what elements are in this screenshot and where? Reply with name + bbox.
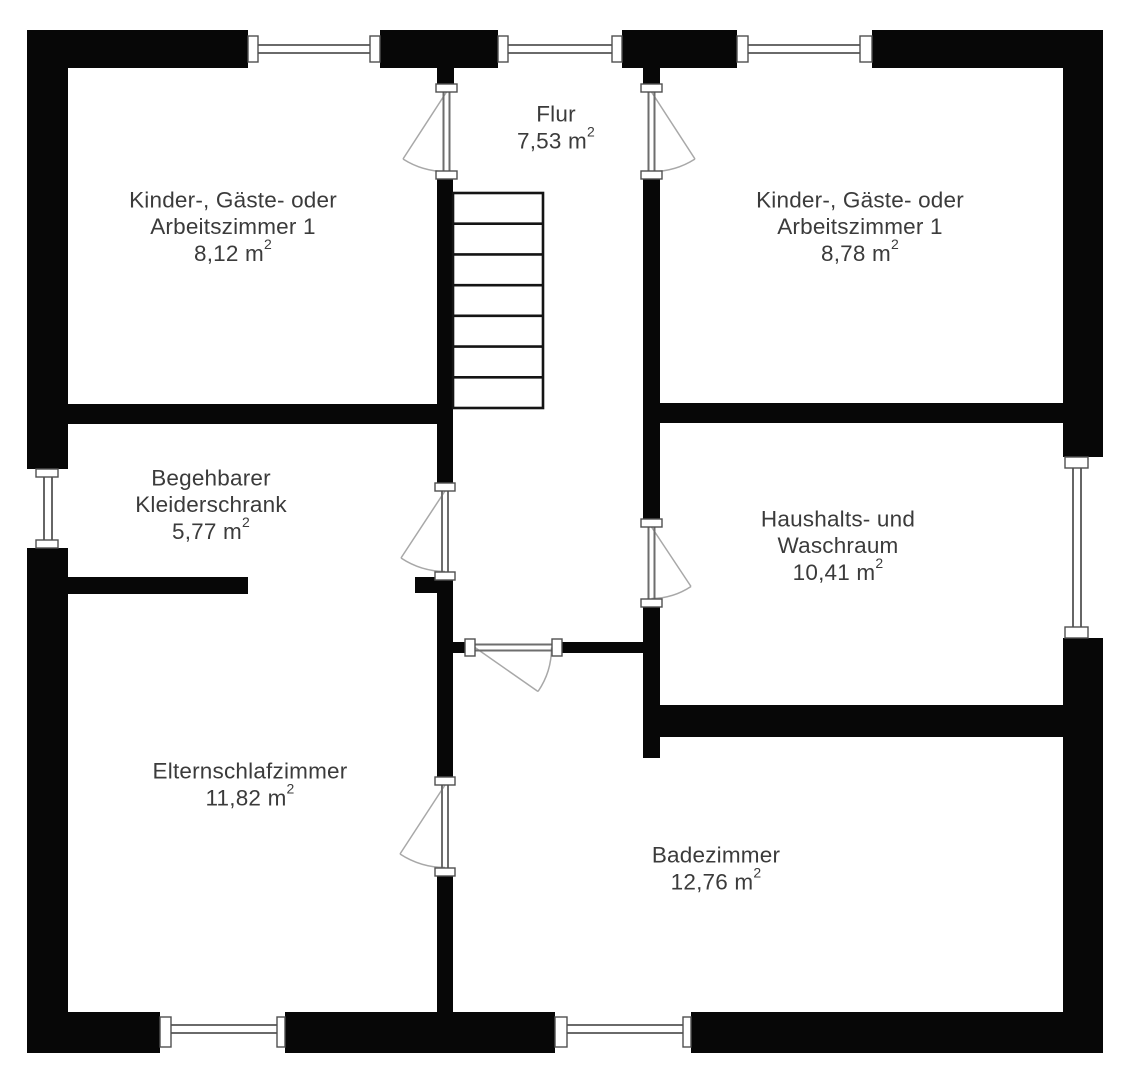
- bath-door-stub: [453, 642, 465, 653]
- divider-left-rooms: [62, 404, 453, 424]
- room-label-begehbarer-kleiderschrank: Begehbarer: [151, 466, 271, 491]
- outer-wall-bottom-2: [285, 1012, 555, 1053]
- room-area-begehbarer-kleiderschrank: 5,77 m2: [172, 514, 250, 544]
- staircase: [453, 193, 543, 408]
- door-flur-left-room-swing-arc: [403, 159, 447, 172]
- window-top-left-frame: [248, 36, 258, 62]
- room-area-elternschlafzimmer: 11,82 m2: [205, 781, 294, 811]
- door-badezimmer-eltern-leaf: [400, 785, 445, 854]
- stair-wall-left-upper: [437, 179, 453, 483]
- room-label-kinder-gaeste-arbeitszimmer-links: Arbeitszimmer 1: [150, 214, 316, 239]
- door-haushaltsraum-jamb: [641, 519, 662, 527]
- outer-wall-left-2: [27, 548, 68, 1053]
- outer-wall-bottom-1: [27, 1012, 160, 1053]
- stair-wall-left-mid: [437, 580, 453, 777]
- kleiderschrank-wall: [62, 577, 248, 594]
- divider-right-rooms: [655, 403, 1063, 423]
- door-badezimmer-flur-jamb: [552, 639, 562, 656]
- window-bottom-center-frame: [683, 1017, 691, 1047]
- kleiderschrank-stub: [415, 577, 437, 593]
- window-top-left-frame: [370, 36, 380, 62]
- window-top-center-frame: [612, 36, 622, 62]
- outer-wall-right-1: [1063, 30, 1103, 457]
- window-bottom-left-frame: [160, 1017, 171, 1047]
- room-label-kinder-gaeste-arbeitszimmer-rechts: Arbeitszimmer 1: [777, 214, 943, 239]
- room-label-kinder-gaeste-arbeitszimmer-rechts: Kinder-, Gäste- oder: [756, 188, 964, 213]
- door-badezimmer-eltern-jamb: [435, 777, 455, 785]
- door-kleiderschrank-leaf: [401, 491, 445, 558]
- door-flur-left-room-leaf: [403, 92, 447, 159]
- outer-wall-bottom-3: [691, 1012, 1103, 1053]
- door-flur-right-room-swing-arc: [652, 159, 696, 172]
- door-badezimmer-flur-swing-arc: [538, 648, 552, 692]
- floor-plan-page: Kinder-, Gäste- oderArbeitszimmer 18,12 …: [0, 0, 1131, 1080]
- window-right-frame: [1065, 627, 1088, 638]
- door-flur-right-room-leaf: [652, 92, 696, 159]
- window-right-frame: [1065, 457, 1088, 468]
- door-flur-right-room-jamb: [641, 171, 662, 179]
- outer-wall-left-1: [27, 30, 68, 469]
- outer-wall-top-2: [380, 30, 498, 68]
- outer-wall-top-3: [622, 30, 737, 68]
- floor-plan-canvas: Kinder-, Gäste- oderArbeitszimmer 18,12 …: [0, 0, 1131, 1080]
- door-badezimmer-eltern-jamb: [435, 868, 455, 876]
- door-flur-left-room-jamb: [436, 84, 457, 92]
- flur-door-stub-right: [643, 68, 660, 84]
- door-badezimmer-eltern-swing-arc: [400, 854, 445, 868]
- room-label-elternschlafzimmer: Elternschlafzimmer: [153, 759, 348, 784]
- room-area-haushalts-und-waschraum: 10,41 m2: [793, 555, 884, 585]
- haushalt-bath-wall: [655, 705, 1063, 737]
- door-kleiderschrank-swing-arc: [401, 558, 445, 572]
- room-label-begehbarer-kleiderschrank: Kleiderschrank: [135, 492, 287, 517]
- room-label-flur: Flur: [536, 102, 576, 127]
- window-top-right-frame: [860, 36, 872, 62]
- room-label-kinder-gaeste-arbeitszimmer-links: Kinder-, Gäste- oder: [129, 188, 337, 213]
- door-badezimmer-flur-leaf: [475, 648, 538, 692]
- bath-corridor-wall: [562, 642, 647, 653]
- window-top-center-frame: [498, 36, 508, 62]
- door-flur-right-room-jamb: [641, 84, 662, 92]
- room-area-badezimmer: 12,76 m2: [671, 865, 762, 895]
- door-haushaltsraum-swing-arc: [652, 587, 692, 599]
- outer-wall-right-2: [1063, 638, 1103, 1053]
- door-kleiderschrank-jamb: [435, 572, 455, 580]
- window-bottom-left-frame: [277, 1017, 285, 1047]
- window-bottom-center-frame: [555, 1017, 567, 1047]
- door-badezimmer-flur-jamb: [465, 639, 475, 656]
- flur-door-stub-left: [437, 68, 454, 84]
- stair-wall-left-lower: [437, 876, 453, 1012]
- door-kleiderschrank-jamb: [435, 483, 455, 491]
- window-left-frame: [36, 469, 58, 477]
- room-label-haushalts-und-waschraum: Haushalts- und: [761, 507, 915, 532]
- window-top-right-frame: [737, 36, 748, 62]
- room-area-kinder-gaeste-arbeitszimmer-rechts: 8,78 m2: [821, 236, 899, 266]
- room-area-flur: 7,53 m2: [517, 124, 595, 154]
- stair-wall-right-upper: [643, 179, 660, 520]
- door-haushaltsraum-leaf: [652, 527, 692, 587]
- window-left-frame: [36, 540, 58, 548]
- room-area-kinder-gaeste-arbeitszimmer-links: 8,12 m2: [194, 236, 272, 266]
- door-flur-left-room-jamb: [436, 171, 457, 179]
- door-haushaltsraum-jamb: [641, 599, 662, 607]
